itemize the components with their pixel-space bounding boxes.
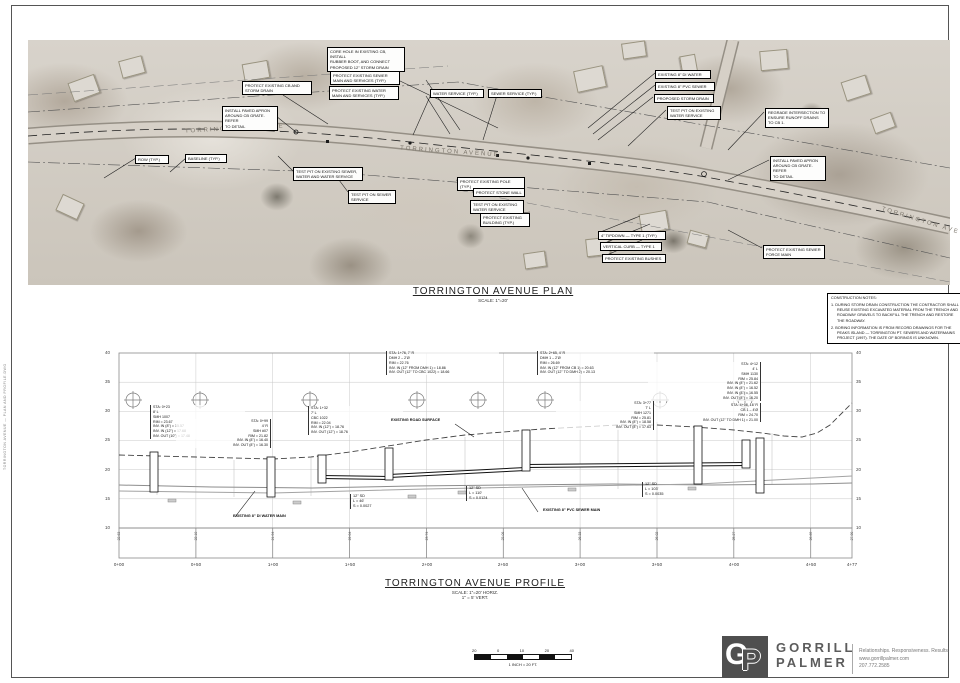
plan-label: BASELINE (TYP.) [185,154,227,163]
elev-tick-left: 10 [96,525,110,530]
datum-elevation: 25.06 [501,525,505,547]
elev-tick-left: 25 [96,437,110,442]
company-contact: Relationships. Responsiveness. Results. … [859,648,949,671]
plan-label: 4" TIPDOWN — TYPE 1 (TYP.) [598,231,666,240]
scale-tick: 10 [520,648,524,653]
station-label: 4+00 [729,562,739,567]
elev-tick-left: 15 [96,496,110,501]
water-main-label: EXISTING 8" DI WATER MAIN [233,514,286,519]
plan-label: ROW (TYP.) [135,155,169,164]
plan-label: VERTICAL CURB — TYPE 1 [600,242,662,251]
company-name-line2: PALMER [776,656,856,671]
plan-label: PROTECT EXISTING CB AND STORM DRAIN [242,81,312,95]
plan-label: PROTECT EXISTING BUSHES [602,254,666,263]
profile-callout: STA: 0+99 4' R SMH #07 RIM = 21.82 INV. … [176,419,271,448]
elev-tick-right: 15 [856,496,870,501]
station-label: 1+50 [345,562,355,567]
datum-elevation: 23.74 [425,525,429,547]
plan-label: INSTALL PAVED APRON AROUND CB GRATE. REF… [222,106,278,131]
company-website: www.gorrillpalmer.com [859,656,949,664]
profile-callout: STA: 4+12 4' L SMH 1130 RIM = 25.84 INV.… [648,362,761,401]
elev-tick-left: 30 [96,408,110,413]
station-label: 0+00 [114,562,124,567]
plan-label: PROTECT EXISTING SEWER MAIN AND SERVICES… [330,71,400,85]
plan-label: INSTALL PAVED APRON AROUND CB GRATE. REF… [770,156,826,181]
profile-callout: STA: 1+32 7' L CBC 1022 RIM = 22.04 INV.… [308,406,403,435]
plan-label: EXISTING 8" DI WATER [655,70,711,79]
elev-tick-left: 20 [96,467,110,472]
elev-tick-left: 35 [96,379,110,384]
station-label: 4+50 [806,562,816,567]
elev-tick-right: 20 [856,467,870,472]
datum-elevation: 26.69 [809,525,813,547]
scale-caption: 1 INCH = 20 FT. [468,662,578,667]
datum-elevation: 21.94 [271,525,275,547]
construction-notes: CONSTRUCTION NOTES: 1. DURING STORM DRAI… [827,293,960,344]
profile-callout: STA: 4+08, 16' R CB 1 – 4'Ø RIM = 24.70 … [642,403,761,422]
storm-drain-label: 12" SD L = 103' S = 0.0035 [642,482,663,497]
storm-drain-label: 12" SD L = 110' S = 0.0124 [466,486,487,501]
datum-elevation: 26.02 [655,525,659,547]
scale-bar-graphic [474,654,572,660]
plan-label: SEWER SERVICE (TYP.) [488,89,542,98]
scale-tick: 20 [472,648,476,653]
scale-tick: 40 [570,648,574,653]
datum-elevation: 26.33 [578,525,582,547]
construction-note: 2. BORING INFORMATION IS FROM RECORD DRA… [831,326,959,341]
storm-drain-label: 12" SD L = 46' S = 0.0027 [350,494,371,509]
station-label: 2+00 [422,562,432,567]
construction-notes-title: CONSTRUCTION NOTES: [831,296,959,301]
plan-label: TEST PIT ON EXISTING SEWER, WATER AND WA… [293,167,363,181]
station-label: 2+50 [498,562,508,567]
company-phone: 207.772.2585 [859,663,949,671]
logo-divider [852,644,853,674]
profile-callout: STA: 1+76, 7' R DMH 2 – 2'Ø RIM = 22.76 … [386,351,499,375]
plan-label: CORE HOLE IN EXISTING CB, INSTALL RUBBER… [327,47,405,72]
datum-elevation: 22.10 [194,525,198,547]
profile-title: TORRINGTON AVENUE PROFILE [325,578,625,589]
plan-label: EXISTING 8" PVC SEWER [655,82,715,91]
profile-callout: STA: 2+65, 4' R DMH 1 – 2'Ø RIM = 26.69 … [537,351,654,375]
gorrill-palmer-logo-icon: G P [722,636,768,678]
plan-scale: SCALE: 1"=20' [343,298,643,303]
plan-label: WATER SERVICE (TYP.) [430,89,484,98]
elev-tick-right: 40 [856,350,870,355]
elev-tick-right: 25 [856,437,870,442]
plan-label: TEST PIT ON EXISTING WATER SERVICE [667,106,721,120]
plan-label: PROPOSED STORM DRAIN [654,94,714,103]
road-surface-label: EXISTING ROAD SURFACE [391,418,440,423]
station-label: 4+77 [847,562,857,567]
company-tagline: Relationships. Responsiveness. Results. [859,648,949,656]
plan-label: PROTECT EXISTING BUILDING (TYP.) [480,213,530,227]
sheet-edge-filename: TORRINGTON AVENUE — PLAN AND PROFILE.DWG [3,363,7,470]
sewer-main-label: EXISTING 8" PVC SEWER MAIN [543,508,600,513]
drawing-sheet: TORRINGTON AVENUE — PLAN AND PROFILE.DWG [0,0,960,683]
station-label: 3+50 [652,562,662,567]
company-name-line1: GORRILL [776,641,856,656]
datum-elevation: 22.04 [348,525,352,547]
elev-tick-right: 10 [856,525,870,530]
elev-tick-right: 35 [856,379,870,384]
plan-title: TORRINGTON AVENUE PLAN [343,286,643,297]
plan-label: TEST PIT ON SEWER SERVICE [348,190,396,204]
plan-label: PROTECT EXISTING WATER MAIN AND SERVICES… [329,86,399,100]
station-label: 1+00 [268,562,278,567]
plan-label: REGRADE INTERSECTION TO ENSURE RUNOFF DR… [765,108,829,128]
station-label: 3+00 [575,562,585,567]
scale-tick: 20 [545,648,549,653]
scale-tick: 0 [497,648,499,653]
logo-monogram-p: P [741,644,761,678]
datum-elevation: 27.90 [850,525,854,547]
profile-scale: SCALE: 1"=20' HORIZ. 1" = 5' VERT. [325,590,625,600]
graphic-scale: 20 0 10 20 40 1 INCH = 20 FT. [468,648,578,667]
datum-elevation: 22.63 [117,525,121,547]
profile-callout: STA: 3+77 7' L SMH 1271 RIM = 25.81 INV.… [556,401,654,430]
plan-label: PROTECT EXISTING SEWER FORCE MAIN [763,245,825,259]
construction-note: 1. DURING STORM DRAIN CONSTRUCTION THE C… [831,303,959,324]
elev-tick-left: 40 [96,350,110,355]
company-name: GORRILL PALMER [776,641,856,671]
station-label: 0+50 [191,562,201,567]
elev-tick-right: 30 [856,408,870,413]
plan-label: PROTECT STONE WALL [473,188,525,197]
datum-elevation: 25.27 [732,525,736,547]
